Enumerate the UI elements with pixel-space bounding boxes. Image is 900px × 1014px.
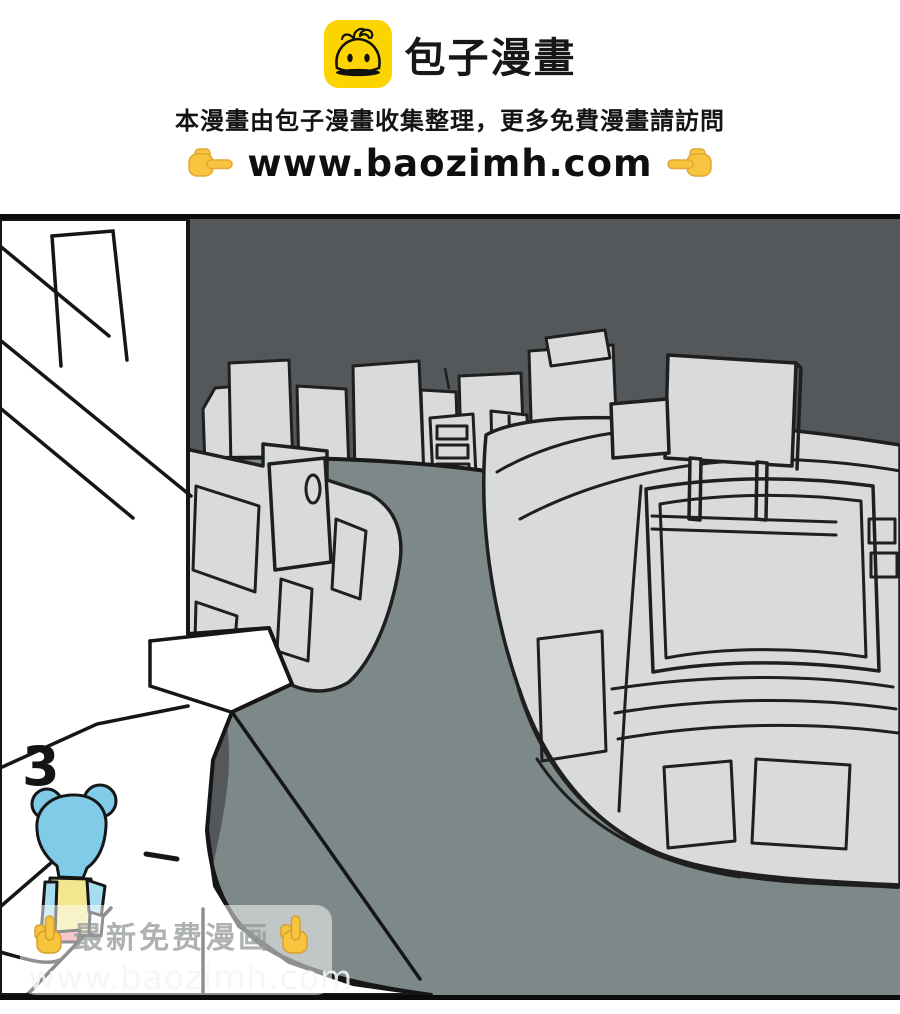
notice-line: 本漫畫由包子漫畫收集整理，更多免費漫畫請訪問 (175, 101, 725, 136)
watermark-overlay: 最新免费漫画 www.baozimh.com (20, 905, 332, 995)
page: { "header": { "brand": { "name": "包子漫畫",… (0, 0, 900, 1014)
pointing-left-icon (667, 148, 713, 180)
brand-title: 包子漫畫 (405, 24, 577, 84)
site-url-link[interactable]: www.baozimh.com (247, 142, 652, 185)
brand-row: 包子漫畫 (324, 20, 577, 88)
page-number: 3 (22, 735, 60, 798)
watermark-title: 最新免费漫画 (73, 913, 271, 957)
watermark-url: www.baozimh.com (28, 958, 332, 997)
pointing-up-icon (34, 915, 64, 955)
billboard-large (665, 355, 796, 466)
pointing-up-icon (280, 915, 310, 955)
comic-panel: 3 最新免费漫画 www.baozimh.com (0, 214, 900, 1000)
site-header: 包子漫畫 本漫畫由包子漫畫收集整理，更多免費漫畫請訪問 www.baozimh.… (0, 0, 900, 214)
pointing-right-icon (187, 148, 233, 180)
watermark-title-row: 最新免费漫画 (34, 913, 332, 957)
billboard-small (611, 399, 669, 458)
comic-scene: 3 (0, 219, 900, 995)
url-row[interactable]: www.baozimh.com (187, 142, 712, 185)
bun-logo-icon (324, 20, 392, 88)
